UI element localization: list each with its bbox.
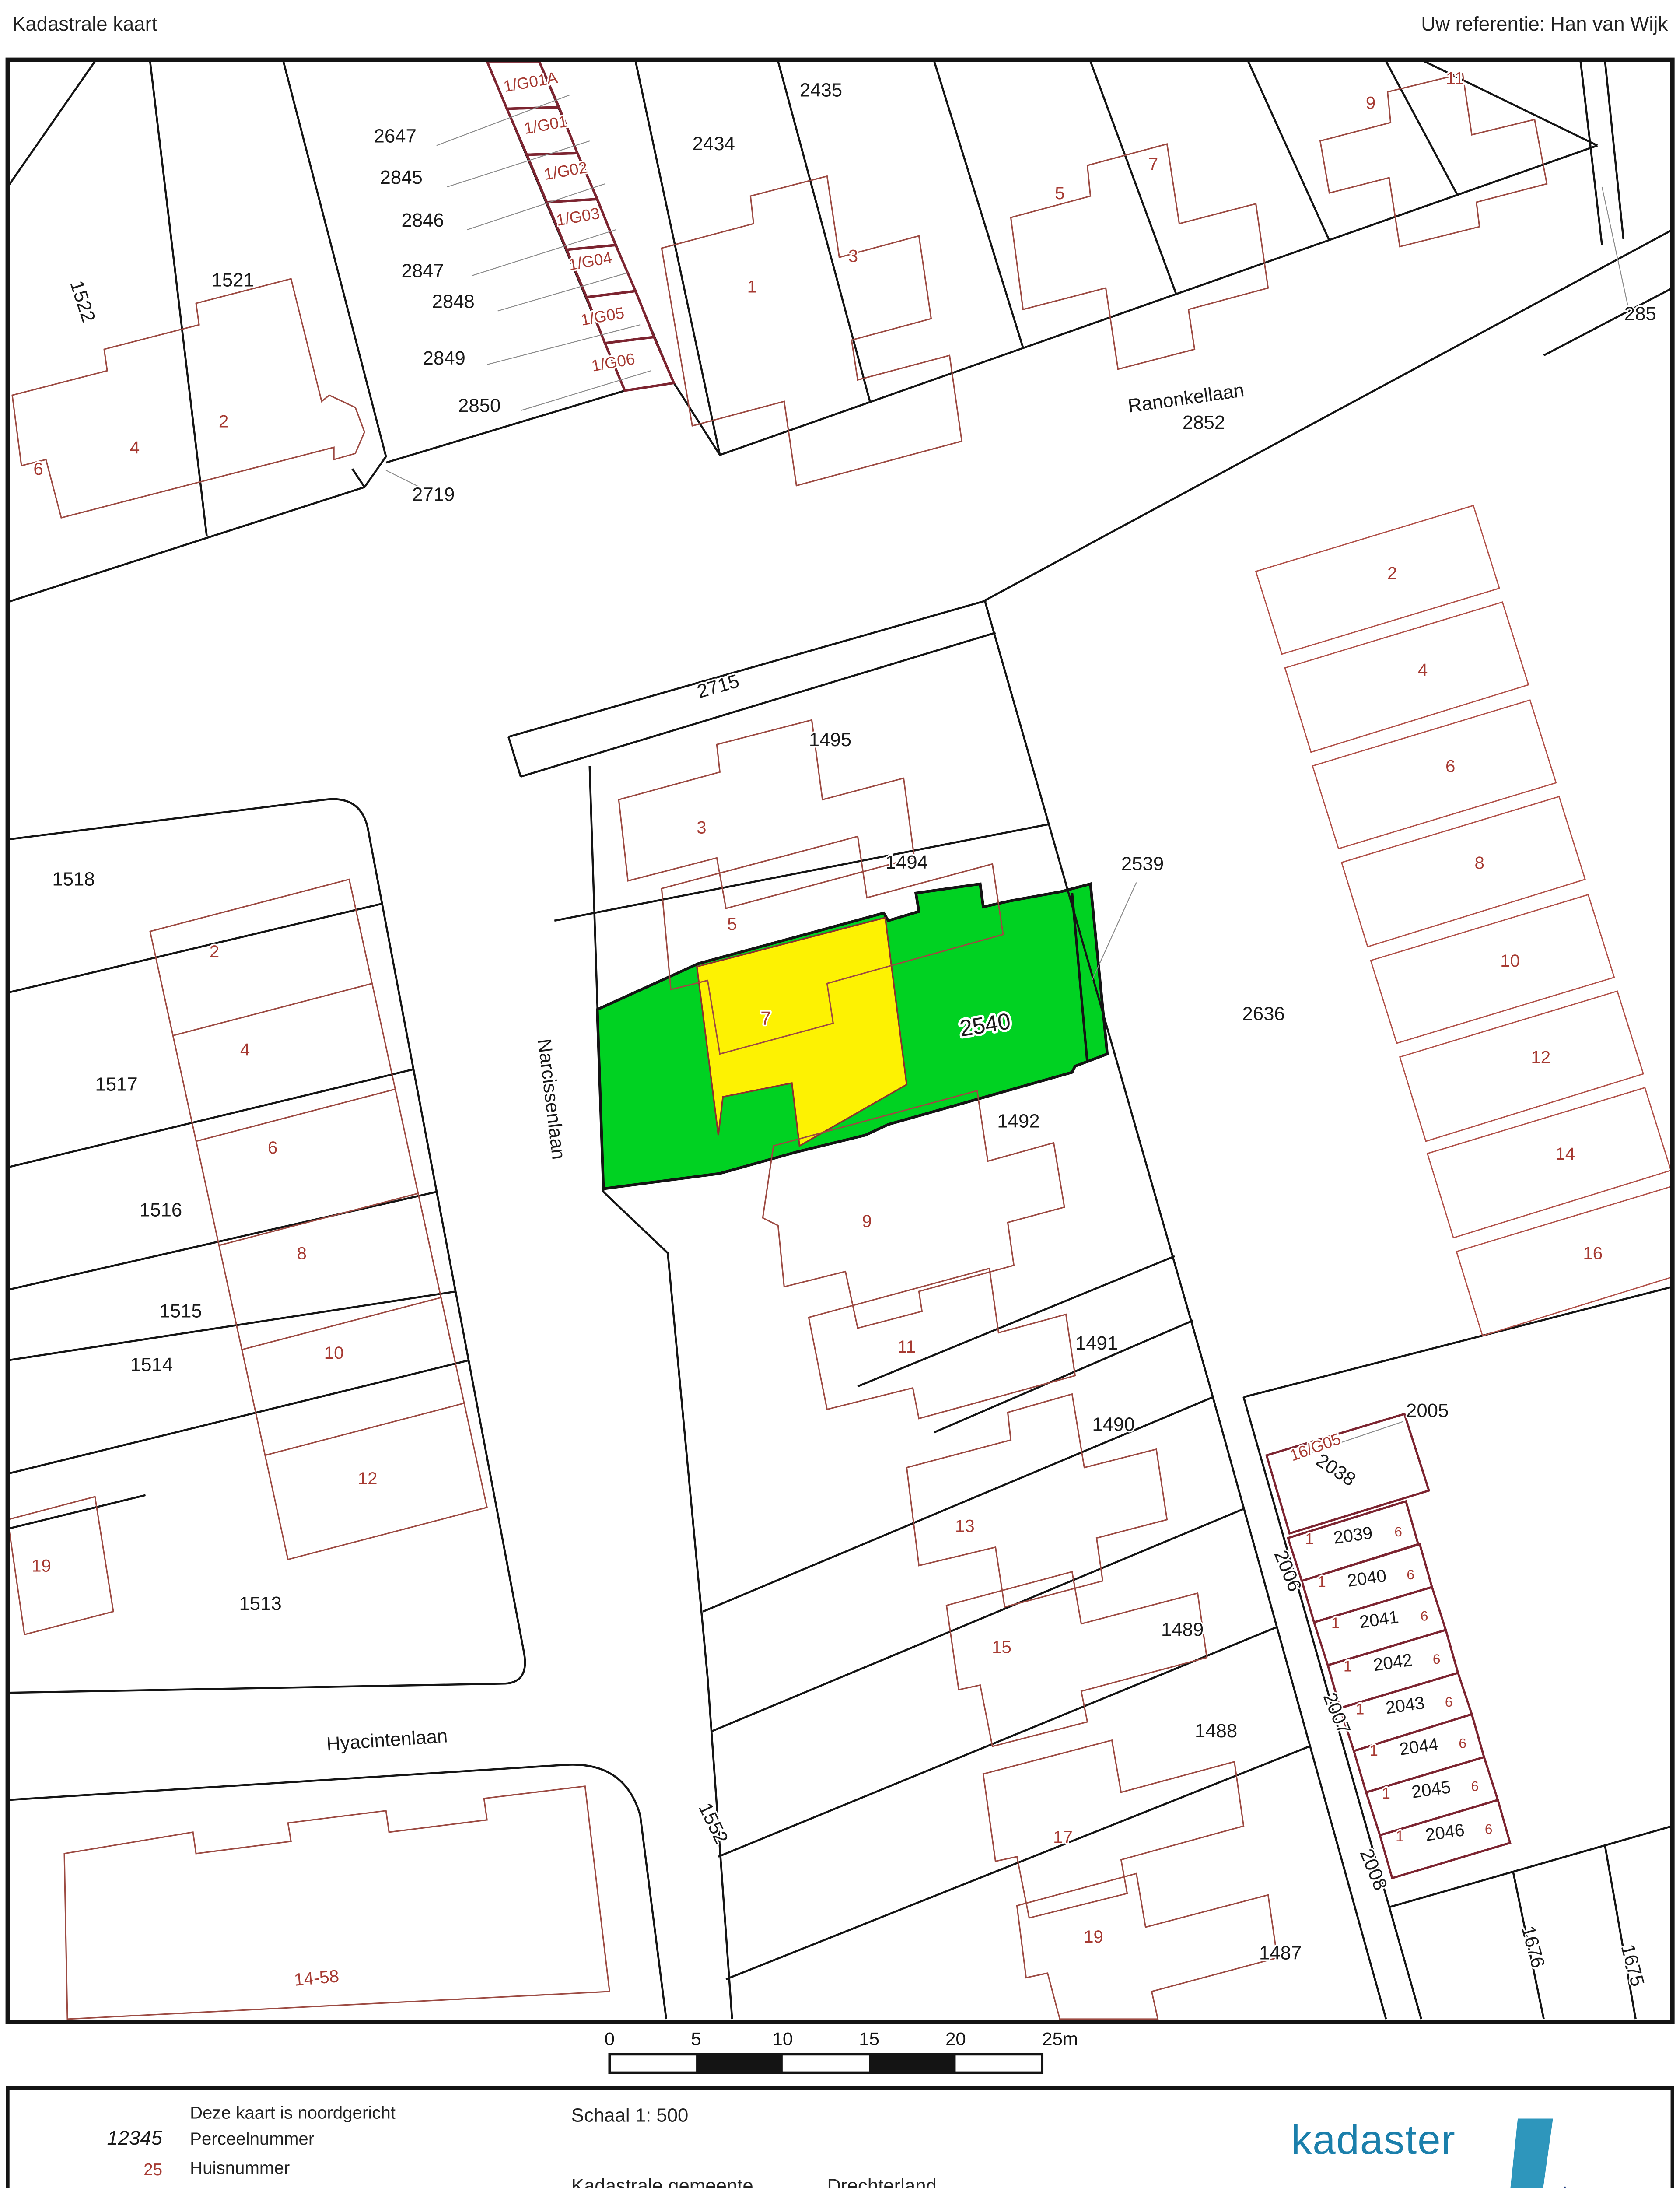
house-number-label: 7 — [760, 1008, 771, 1029]
house-number-label: 10 — [1500, 951, 1520, 971]
house-number-label: 6 — [1445, 756, 1455, 776]
house-number-label: 16 — [1583, 1244, 1603, 1263]
house-number-label: 1 — [1317, 1574, 1326, 1591]
kadastrale-kaart-page: Kadastrale kaart Uw referentie: Han van … — [0, 0, 1680, 2188]
house-number-label: 1 — [1305, 1531, 1313, 1548]
parcel-number-label: 1513 — [239, 1593, 281, 1614]
parcel-number-label: 2044 — [1398, 1734, 1440, 1759]
parcel-number-label: 2647 — [374, 126, 416, 147]
parcel-number-label: 2042 — [1372, 1650, 1414, 1675]
leader-line — [1602, 187, 1628, 306]
scale-tick-label: 10 — [772, 2028, 793, 2049]
kadaster-logo-mark — [1473, 2118, 1633, 2188]
gemeente-label: Kadastrale gemeente — [571, 2175, 753, 2188]
house-number-label: 4 — [1418, 660, 1428, 680]
house-number-label: 6 — [1394, 1524, 1402, 1539]
house-number-label: 6 — [268, 1138, 277, 1157]
house-number-label: 6 — [1433, 1651, 1441, 1667]
house-number-label: 6 — [1459, 1735, 1466, 1751]
house-number-label: 9 — [1366, 93, 1375, 113]
parcel-number-label: 2040 — [1346, 1566, 1388, 1591]
house-number-label: 14 — [1555, 1144, 1575, 1164]
house-number-label: 19 — [1084, 1927, 1103, 1946]
house-number-label: 2 — [219, 412, 228, 431]
garage-strip-southeast — [1267, 1414, 1510, 1878]
parcel-number-label: 285 — [1624, 303, 1656, 325]
parcel-number-label: 2539 — [1121, 853, 1164, 874]
parcel-number-label: 2435 — [800, 80, 842, 101]
house-number-label: 8 — [297, 1244, 306, 1263]
house-number-label: 17 — [1053, 1827, 1073, 1847]
parcel-number-label: 2434 — [693, 133, 735, 154]
parcel-number-label: 2039 — [1332, 1523, 1374, 1548]
street-name-ranonkellaan: Ranonkellaan — [1127, 379, 1246, 417]
house-number-label: 5 — [1055, 183, 1064, 203]
logo-dark-stroke — [1535, 2186, 1633, 2188]
leader-lines — [386, 95, 1628, 1459]
legend-house-sample: 25 — [58, 2161, 162, 2180]
house-number-label: 1 — [1396, 1828, 1404, 1845]
scale-tick-label: 0 — [605, 2028, 615, 2049]
parcel-number-label: 2005 — [1406, 1400, 1449, 1421]
parcel-number-label: 2848 — [432, 291, 475, 312]
house-number-label: 2 — [1387, 563, 1397, 583]
parcel-number-label: 2850 — [458, 395, 500, 417]
house-number-label: 3 — [848, 246, 858, 266]
house-number-label: 1 — [1344, 1658, 1352, 1675]
parcel-number-label: 2007 — [1319, 1690, 1355, 1737]
legend-parcel-label: Perceelnummer — [190, 2131, 314, 2149]
legend-north-note: Deze kaart is noordgericht — [190, 2105, 395, 2123]
parcel-number-label: 2715 — [695, 670, 742, 702]
house-number-label: 6 — [1471, 1778, 1479, 1794]
scale-tick-label: 5 — [691, 2028, 701, 2049]
house-number-label: 11 — [1446, 69, 1464, 88]
parcel-number-label: 1517 — [95, 1073, 137, 1095]
parcel-number-label: 1552 — [694, 1799, 732, 1847]
house-number-label: 19 — [31, 1556, 51, 1576]
house-number-label: 7 — [1148, 154, 1158, 174]
scale-tick-label: 25m — [1042, 2028, 1078, 2049]
parcel-number-label: 1676 — [1517, 1924, 1549, 1971]
scale-tick-label: 20 — [945, 2028, 966, 2049]
house-number-label: 10 — [324, 1343, 344, 1363]
parcel-number-label: 1495 — [809, 729, 851, 750]
house-number-label: 13 — [955, 1516, 975, 1536]
logo-light-stroke — [1473, 2118, 1553, 2188]
house-number-label: 1/G04 — [567, 249, 613, 274]
house-number-label: 1/G01 — [523, 112, 569, 137]
parcel-number-label: 2849 — [423, 347, 465, 369]
house-number-label: 1 — [1331, 1615, 1340, 1632]
parcel-number-label: 2852 — [1183, 412, 1225, 433]
kadaster-logo-text: kadaster — [1291, 2117, 1456, 2165]
house-number-label: 11 — [898, 1337, 916, 1357]
house-number-label: 6 — [1421, 1608, 1428, 1624]
leader-line — [498, 273, 628, 311]
parcel-number-label: 1488 — [1195, 1720, 1237, 1742]
parcel-number-label: 1515 — [159, 1301, 202, 1322]
house-number-label: 14-58 — [293, 1966, 339, 1990]
house-number-label: 1 — [1369, 1742, 1378, 1759]
parcel-number-label: 2847 — [402, 260, 444, 282]
house-number-label: 1/G03 — [555, 204, 601, 229]
parcel-number-label: 2006 — [1270, 1547, 1306, 1595]
parcel-number-label: 2636 — [1242, 1003, 1284, 1024]
parcel-number-label: 2046 — [1424, 1820, 1466, 1845]
parcel-number-label: 2045 — [1410, 1777, 1452, 1802]
parcel-number-label: 1487 — [1259, 1942, 1302, 1964]
parcel-number-label: 1522 — [66, 278, 99, 325]
street-name-narcissenlaan: Narcissenlaan — [533, 1038, 569, 1161]
legend-parcel-sample: 12345 — [58, 2126, 162, 2149]
house-number-label: 9 — [862, 1211, 871, 1231]
parcel-number-label: 1494 — [885, 852, 928, 873]
house-number-label: 1 — [1356, 1701, 1364, 1718]
garage-boxes-east — [1256, 505, 1680, 1336]
gemeente-value: Drechterland — [827, 2175, 937, 2188]
parcel-number-label: 2038 — [1312, 1449, 1359, 1490]
parcel-number-label: 2846 — [402, 210, 444, 231]
parcel-number-label: 2719 — [412, 484, 455, 505]
house-number-label: 6 — [33, 459, 43, 479]
house-number-label: 4 — [240, 1040, 250, 1059]
parcel-number-label: 2041 — [1358, 1607, 1400, 1632]
house-number-label: 1 — [747, 277, 757, 297]
parcel-number-label: 1514 — [130, 1354, 173, 1375]
parcel-number-label: 1518 — [52, 868, 94, 890]
house-number-label: 6 — [1445, 1694, 1453, 1710]
parcel-number-label: 1492 — [997, 1111, 1039, 1132]
parcel-number-label: 1489 — [1161, 1619, 1204, 1641]
street-name-hyacintenlaan: Hyacintenlaan — [326, 1725, 448, 1755]
parcel-number-label: 2043 — [1384, 1693, 1426, 1718]
house-number-label: 6 — [1485, 1821, 1493, 1837]
house-number-label: 15 — [992, 1637, 1011, 1657]
parcel-number-label: 1521 — [211, 270, 254, 291]
leader-line — [1092, 882, 1137, 980]
cadastral-map: 2647284528462847284828492850271915221521… — [0, 0, 1680, 2188]
house-number-label: 1/G05 — [579, 304, 626, 329]
house-number-label: 3 — [696, 817, 706, 837]
parcel-number-label: 1516 — [140, 1199, 182, 1221]
parcel-number-label: 1491 — [1075, 1332, 1118, 1354]
scale-text: Schaal 1: 500 — [571, 2105, 689, 2126]
house-number-label: 6 — [1407, 1567, 1414, 1582]
house-number-label: 12 — [358, 1469, 378, 1488]
house-number-label: 2 — [210, 942, 219, 961]
house-number-label: 1/G02 — [542, 158, 589, 183]
scale-bar: 0510152025m — [605, 2028, 1078, 2072]
parcel-number-label: 1490 — [1092, 1414, 1134, 1435]
house-number-label: 1/G01A — [502, 68, 559, 95]
legend-house-label: Huisnummer — [190, 2160, 290, 2178]
scale-tick-label: 15 — [859, 2028, 879, 2049]
parcel-number-label: 1675 — [1617, 1942, 1648, 1989]
house-number-label: 4 — [130, 438, 140, 457]
parcel-number-label: 2845 — [380, 167, 423, 188]
house-number-label: 12 — [1531, 1047, 1550, 1067]
house-number-label: 8 — [1474, 853, 1484, 873]
house-number-label: 5 — [727, 914, 737, 934]
house-number-label: 1 — [1382, 1785, 1390, 1802]
house-number-label: 1/G06 — [590, 350, 637, 375]
